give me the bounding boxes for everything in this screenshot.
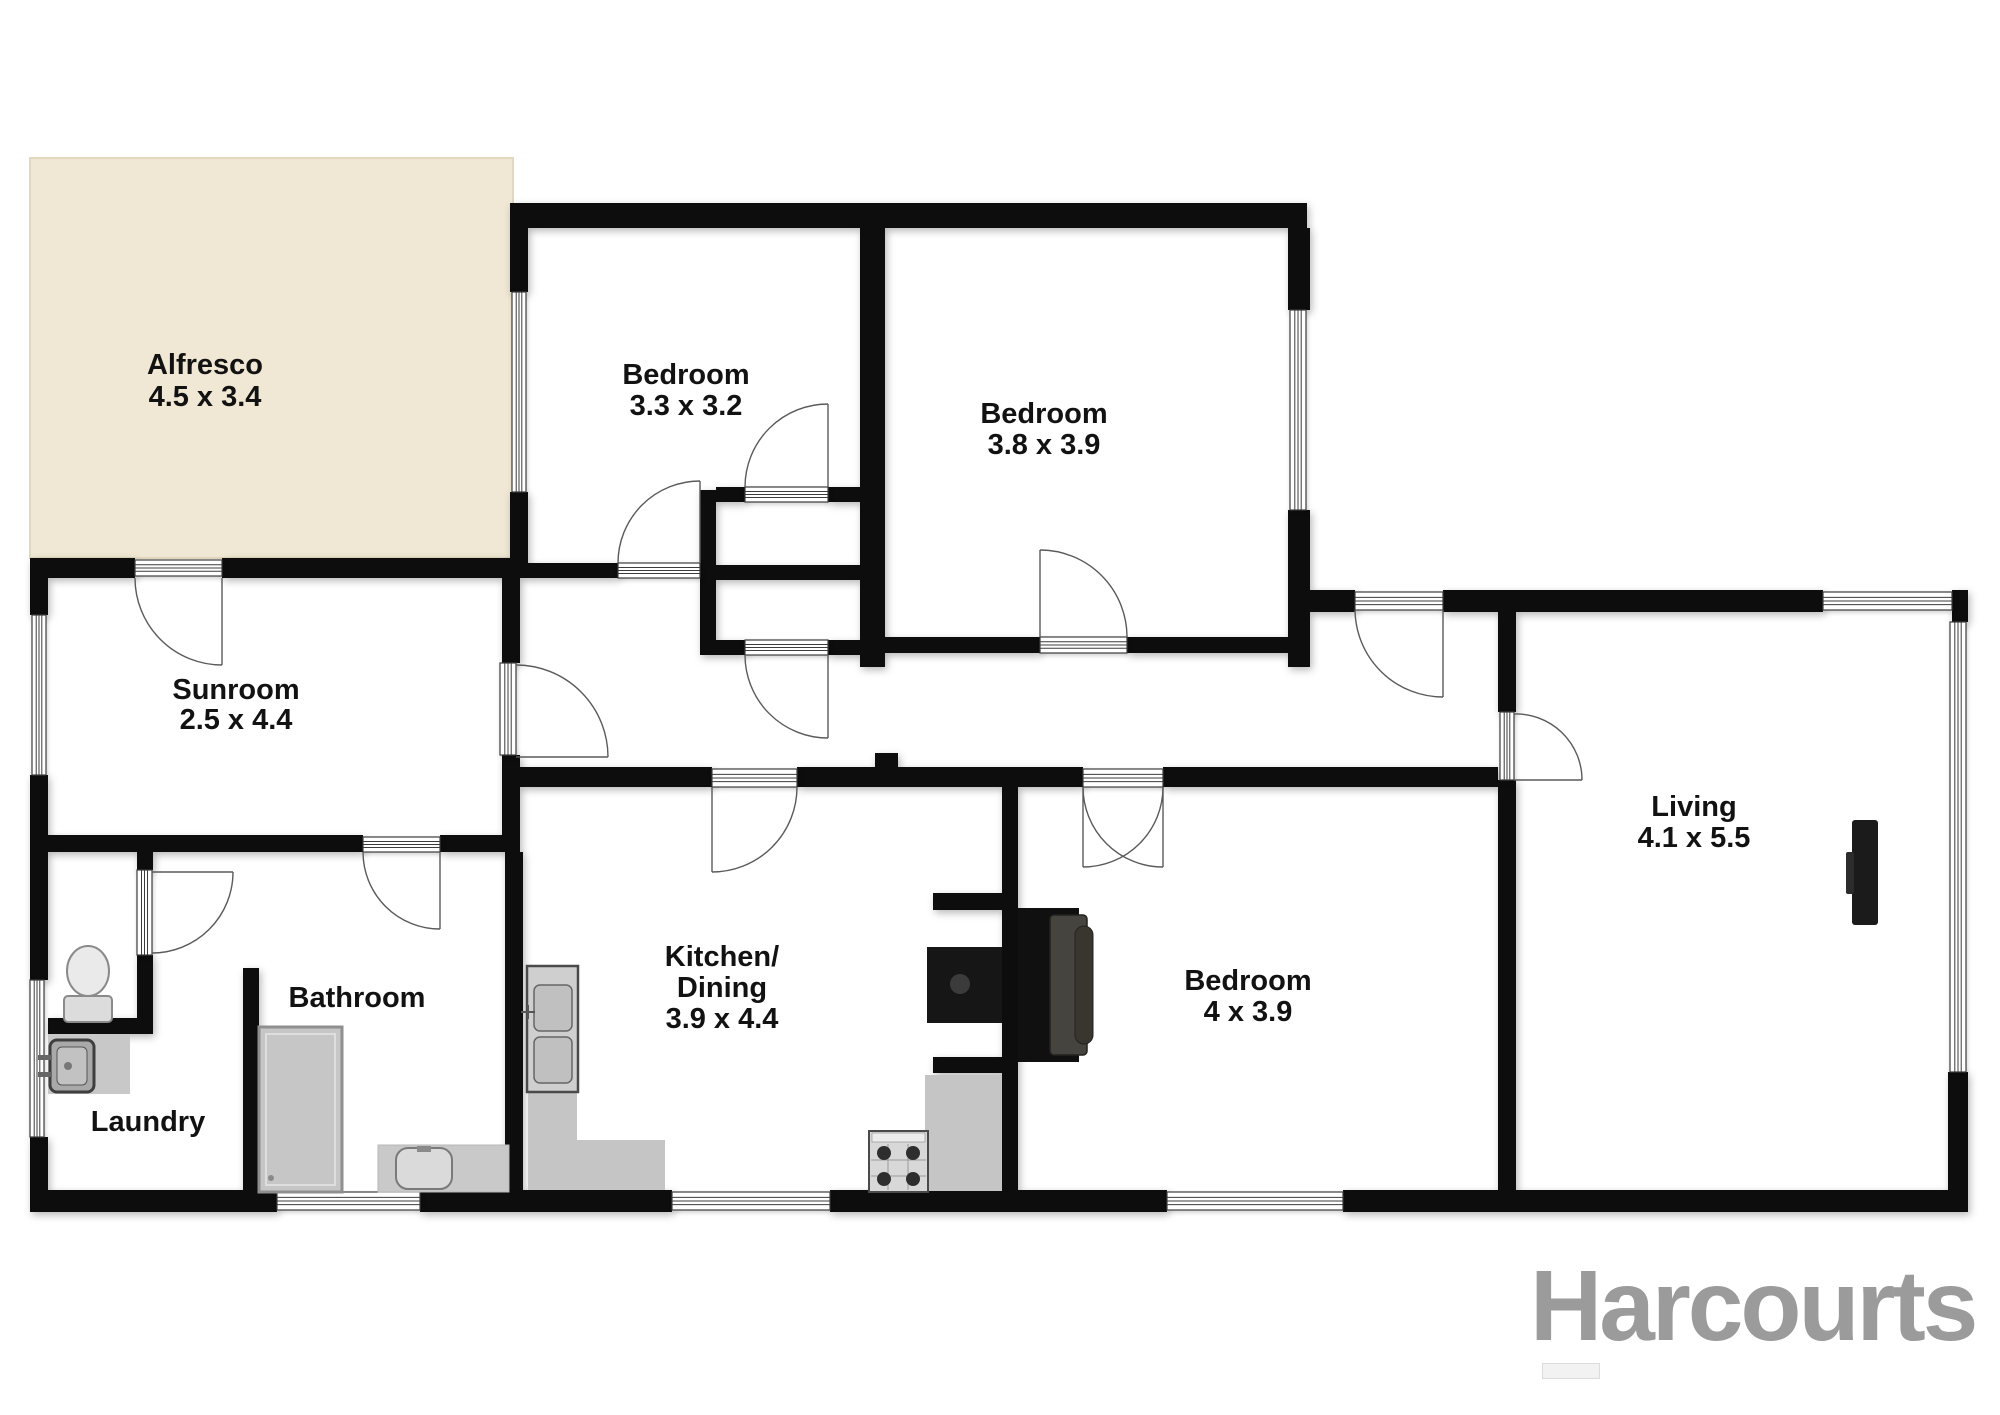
shower-base [259,1027,342,1192]
fireplace-bulge [1075,926,1093,1044]
wall-segment [505,852,523,1195]
door-swing-arc [1355,610,1443,697]
room-label-bedroom-2: 3.8 x 3.9 [988,429,1101,461]
wall-segment [933,1057,1002,1073]
door-swing-arc [152,872,233,953]
wall-segment [510,203,1307,228]
wall-segment [875,753,898,767]
laundry-drain [64,1062,72,1070]
alfresco-area [30,158,513,558]
wall-segment [828,640,860,655]
kitchen-sink-basin-b [534,1037,572,1083]
door-swing-arc [363,852,440,929]
wall-segment [1002,787,1018,1195]
wall-segment [505,767,712,787]
floorplan-canvas: Alfresco4.5 x 3.4Bedroom3.3 x 3.2Bedroom… [0,0,2000,1415]
stove-burner-4 [906,1172,920,1186]
room-label-laundry: Laundry [91,1106,205,1138]
wall-segment [1288,228,1310,310]
wall-segment [137,955,153,1018]
wall-segment [222,558,515,578]
room-label-bedroom-3: 4 x 3.9 [1204,996,1293,1028]
door-swing-arc [135,578,222,665]
door-swing-arc [745,655,828,738]
floor-plan: Alfresco4.5 x 3.4Bedroom3.3 x 3.2Bedroom… [0,0,2000,1415]
wall-segment [933,893,1002,910]
room-label-kitchen-dining: 3.9 x 4.4 [666,1003,779,1035]
toilet-bowl [67,946,109,996]
wall-segment [30,835,363,852]
kitchen-sink-basin-a [534,985,572,1031]
wall-segment [502,558,520,663]
wall-segment [797,767,1083,787]
harcourts-logo: Harcourts [1530,1256,1962,1356]
wall-segment [1343,1190,1968,1212]
wall-segment [860,228,885,580]
kitchen-counter-r [925,1075,1002,1191]
wall-segment [1288,510,1310,667]
door-swing-arc [1083,787,1163,867]
door-swing-arc [712,787,797,872]
vanity-basin [396,1148,452,1189]
wall-segment [1498,780,1516,1190]
room-label-bedroom-1: 3.3 x 3.2 [630,390,743,422]
stove-burner-3 [877,1172,891,1186]
wall-segment [1952,590,1968,622]
wall-segment [716,640,745,655]
door-swing-arc [516,665,608,757]
room-label-alfresco: Alfresco [147,349,263,381]
laundry-faucet-a [38,1055,52,1060]
wall-segment [716,487,745,502]
wall-segment [885,637,1040,653]
wall-segment [1948,1072,1968,1192]
tv-mount [1846,852,1854,894]
room-label-sunroom: 2.5 x 4.4 [180,704,293,736]
door-swing-arc [618,481,700,563]
wall-segment [716,565,860,580]
wall-segment [1127,637,1288,653]
room-label-bedroom-3: Bedroom [1184,965,1311,997]
harcourts-logo-bar [1542,1363,1600,1379]
room-label-bedroom-1: Bedroom [622,359,749,391]
laundry-faucet-b [38,1072,52,1077]
door-swing-arc [1040,550,1127,637]
toilet-tank [64,996,112,1022]
wall-segment [420,1190,672,1212]
alfresco-group [30,158,513,558]
door-swing-arc [1083,787,1163,867]
shower-drain [268,1175,274,1181]
wall-segment [1288,590,1355,612]
room-label-bathroom: Bathroom [289,982,426,1014]
wall-segment [30,1190,277,1212]
stove-band [872,1133,925,1142]
room-label-alfresco: 4.5 x 3.4 [149,381,262,413]
room-label-living: 4.1 x 5.5 [1638,822,1751,854]
wall-segment [510,228,528,292]
stove-burner-2 [906,1146,920,1160]
tv-panel [1852,820,1878,925]
room-label-sunroom: Sunroom [172,674,299,706]
door-swing-arc [745,404,828,487]
wall-segment [860,580,885,667]
wall-segment [243,968,259,1195]
wall-segment [1498,592,1516,712]
stove-burner-1 [877,1146,891,1160]
room-label-bedroom-2: Bedroom [980,398,1107,430]
wall-segment [30,775,48,980]
wall-segment [828,487,860,502]
room-label-living: Living [1651,791,1736,823]
harcourts-logo-text: Harcourts [1530,1250,1975,1362]
room-label-kitchen-dining: Dining [677,972,767,1004]
vanity-tap [417,1146,431,1152]
door-swing-arc [1514,714,1582,780]
room-label-kitchen-dining: Kitchen/ [665,941,779,973]
wall-segment [137,852,153,870]
wall-segment [30,558,135,578]
wall-segment [30,1137,48,1197]
wall-segment [1163,767,1498,787]
wall-segment [700,490,716,655]
wall-segment [830,1190,1167,1212]
fireplace-ring [950,974,970,994]
wall-segment [440,835,515,852]
